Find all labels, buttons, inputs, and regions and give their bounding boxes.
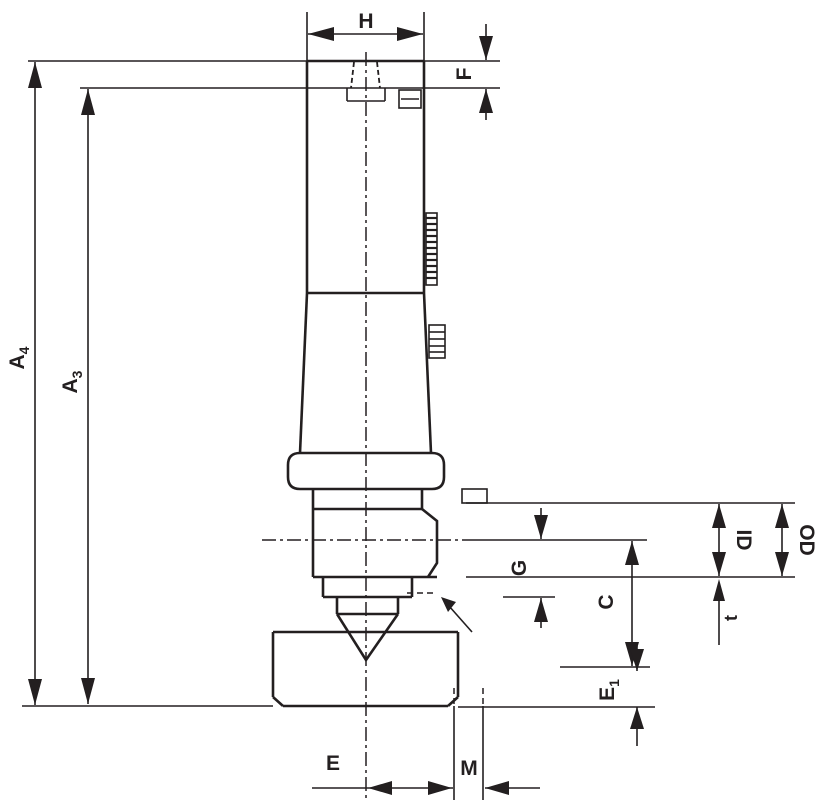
technical-drawing: H F A4 A3 G C ID OD t E1 E M xyxy=(0,0,822,800)
label-a3-subscript: 3 xyxy=(69,370,85,378)
dimension-label-e: E xyxy=(326,752,340,775)
technical-drawing-page: H F A4 A3 G C ID OD t E1 E M xyxy=(0,0,822,800)
label-e1-base: E xyxy=(596,687,619,701)
dimension-label-t: t xyxy=(721,615,741,621)
dimension-label-id: ID xyxy=(732,530,755,551)
label-a4-base: A xyxy=(6,354,29,369)
drawing-background xyxy=(0,0,822,800)
dimension-label-f: F xyxy=(453,67,476,80)
dimension-label-g: G xyxy=(508,560,531,576)
dimension-label-c: C xyxy=(595,594,618,609)
dimension-label-m: M xyxy=(460,757,478,780)
dimension-label-h: H xyxy=(358,10,373,33)
label-a4-subscript: 4 xyxy=(16,346,32,354)
label-e1-subscript: 1 xyxy=(606,679,622,687)
label-a3-base: A xyxy=(59,378,82,393)
dimension-label-od: OD xyxy=(795,524,818,556)
